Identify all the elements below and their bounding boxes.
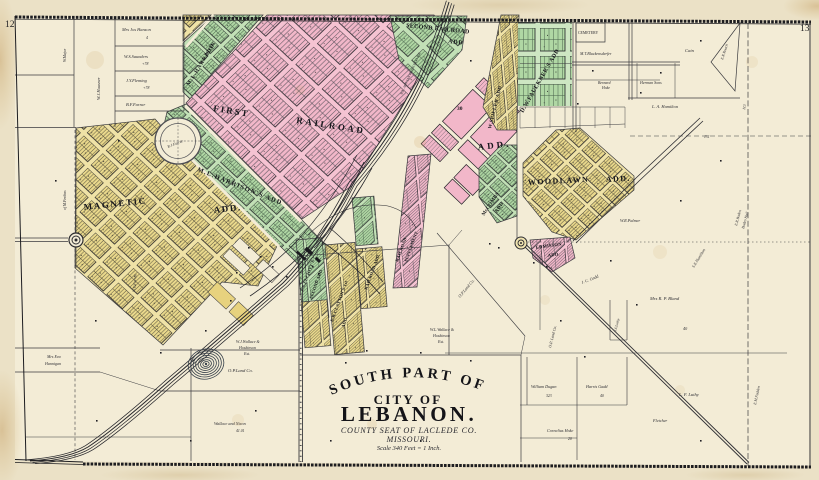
svg-text:B.F.Farrar: B.F.Farrar bbox=[126, 102, 145, 107]
svg-text:L. A. Hamilton: L. A. Hamilton bbox=[651, 104, 679, 109]
svg-text:323: 323 bbox=[546, 394, 552, 398]
svg-text:CEMETERY: CEMETERY bbox=[578, 31, 599, 35]
svg-text:+78: +78 bbox=[143, 86, 149, 90]
svg-text:Hoke: Hoke bbox=[601, 86, 610, 90]
svg-text:131: 131 bbox=[704, 135, 710, 139]
svg-text:William Dugan: William Dugan bbox=[531, 384, 556, 389]
svg-text:W.J.Hausner: W.J.Hausner bbox=[96, 77, 101, 100]
svg-text:Cain: Cain bbox=[685, 48, 695, 53]
svg-text:Est.: Est. bbox=[437, 339, 444, 344]
svg-text:41.01: 41.01 bbox=[236, 429, 245, 433]
svg-text:Mrs Jos Hanson: Mrs Jos Hanson bbox=[121, 27, 152, 32]
svg-text:of M.Perkins: of M.Perkins bbox=[63, 190, 67, 210]
svg-text:Herman Sons: Herman Sons bbox=[639, 80, 662, 85]
svg-text:W.Major: W.Major bbox=[63, 48, 67, 62]
svg-text:Cornelius Hoke: Cornelius Hoke bbox=[547, 428, 574, 433]
svg-text:MISSOURI.: MISSOURI. bbox=[386, 435, 432, 444]
svg-text:Hannigan: Hannigan bbox=[44, 361, 61, 366]
svg-text:O.P.Land Co.: O.P.Land Co. bbox=[228, 368, 253, 373]
svg-text:W.S.Saunders: W.S.Saunders bbox=[124, 54, 148, 59]
svg-text:4: 4 bbox=[146, 36, 148, 40]
svg-text:Fletcher: Fletcher bbox=[652, 418, 668, 423]
svg-text:Bernard: Bernard bbox=[598, 81, 611, 85]
svg-text:W.L.Wallace &: W.L.Wallace & bbox=[430, 327, 455, 332]
svg-text:Harris Gadd: Harris Gadd bbox=[585, 384, 608, 389]
svg-text:Est.: Est. bbox=[243, 351, 250, 356]
svg-text:COUNTY SEAT OF LACLEDE CO.: COUNTY SEAT OF LACLEDE CO. bbox=[341, 426, 477, 435]
svg-text:Mrs R. P. Bland: Mrs R. P. Bland bbox=[649, 296, 680, 301]
svg-text:12: 12 bbox=[5, 20, 15, 30]
svg-text:+78: +78 bbox=[142, 62, 148, 66]
svg-text:J.Y.Fleming: J.Y.Fleming bbox=[126, 78, 148, 83]
svg-text:M.T.Bluckensderfer: M.T.Bluckensderfer bbox=[579, 51, 612, 56]
svg-text:30: 30 bbox=[457, 106, 463, 112]
svg-text:20: 20 bbox=[568, 437, 572, 441]
svg-text:13: 13 bbox=[800, 24, 810, 34]
svg-text:Hoskinson: Hoskinson bbox=[432, 333, 450, 338]
svg-text:Hoskinson: Hoskinson bbox=[238, 345, 256, 350]
svg-text:40: 40 bbox=[600, 394, 604, 398]
svg-text:ADD.: ADD. bbox=[606, 174, 631, 184]
svg-text:W.J.Wallace &: W.J.Wallace & bbox=[236, 339, 260, 344]
svg-text:Scale 340 Feet = 1 Inch.: Scale 340 Feet = 1 Inch. bbox=[377, 445, 442, 452]
svg-text:Mrs Eva: Mrs Eva bbox=[46, 354, 61, 359]
svg-text:W.R.Palmer: W.R.Palmer bbox=[620, 218, 640, 223]
svg-text:LEBANON.: LEBANON. bbox=[341, 402, 477, 426]
